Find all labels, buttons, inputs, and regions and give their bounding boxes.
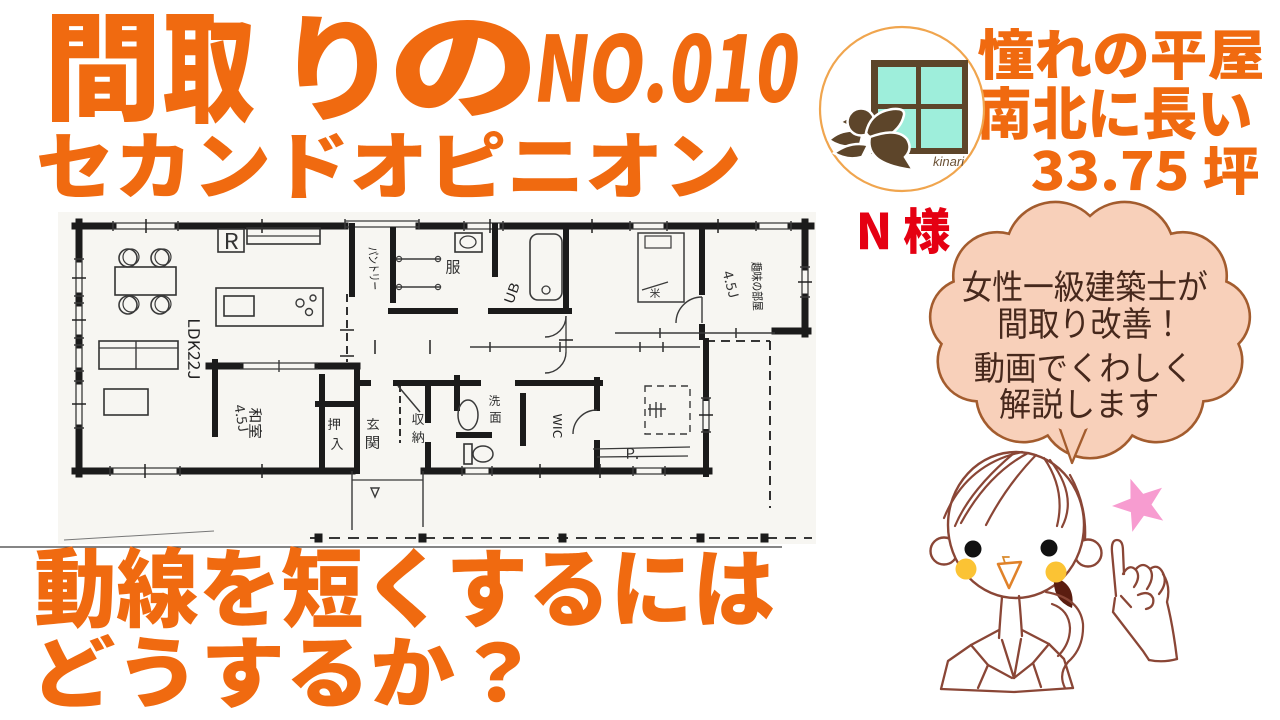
svg-text:kinari: kinari: [933, 154, 965, 169]
